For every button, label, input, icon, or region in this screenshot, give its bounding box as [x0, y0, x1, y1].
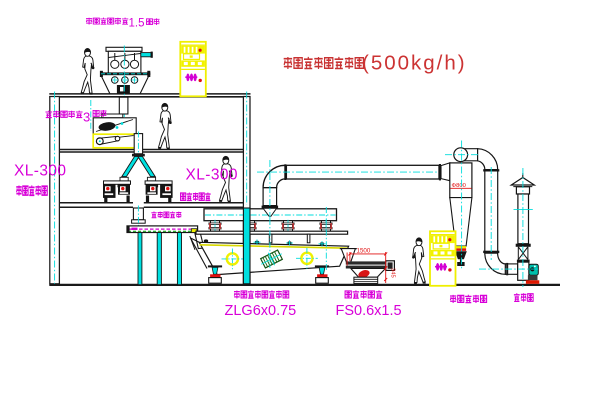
svg-text:345: 345: [390, 268, 396, 278]
svg-text:1500: 1500: [357, 248, 371, 255]
svg-text:XL-300: XL-300: [14, 163, 66, 180]
svg-text:(500kg/h): (500kg/h): [362, 52, 467, 75]
svg-text:XL-300: XL-300: [186, 167, 238, 184]
svg-text:ZLG6x0.75: ZLG6x0.75: [225, 303, 297, 319]
svg-text:1.5: 1.5: [129, 18, 145, 30]
svg-text:3: 3: [83, 110, 90, 125]
svg-text:FS0.6x1.5: FS0.6x1.5: [336, 303, 402, 319]
